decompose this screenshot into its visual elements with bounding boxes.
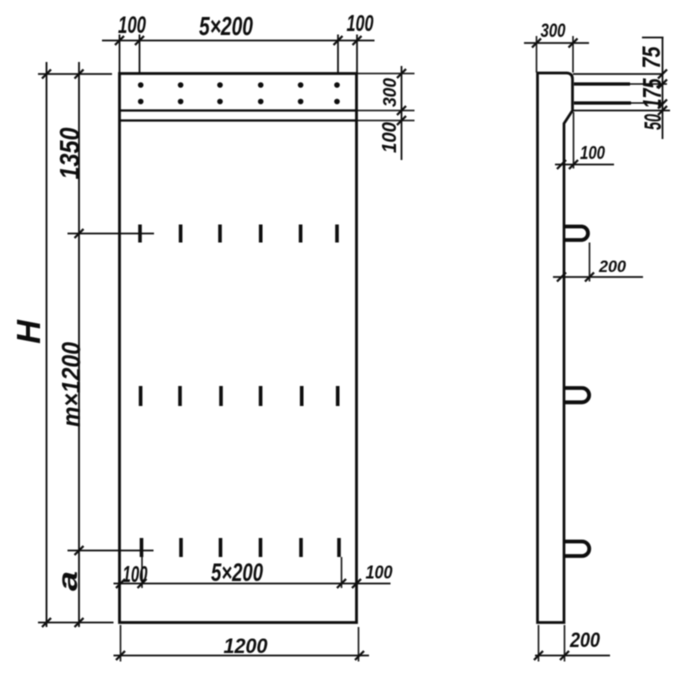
svg-text:100: 100: [347, 10, 374, 36]
svg-text:300: 300: [379, 77, 400, 107]
svg-text:200: 200: [569, 629, 600, 652]
svg-text:5×200: 5×200: [211, 559, 263, 587]
svg-text:H: H: [10, 319, 47, 344]
svg-text:5×200: 5×200: [199, 11, 253, 41]
svg-text:175: 175: [637, 78, 667, 108]
svg-text:100: 100: [366, 562, 394, 583]
svg-text:200: 200: [598, 257, 626, 276]
svg-text:100: 100: [123, 561, 148, 587]
svg-text:100: 100: [118, 12, 146, 39]
svg-text:300: 300: [541, 20, 566, 42]
svg-text:100: 100: [580, 143, 605, 163]
svg-text:a: a: [52, 571, 83, 591]
svg-text:1350: 1350: [54, 127, 85, 179]
svg-text:50: 50: [640, 114, 667, 130]
svg-text:1200: 1200: [224, 635, 268, 658]
svg-text:100: 100: [379, 122, 401, 153]
svg-text:75: 75: [638, 46, 666, 69]
svg-text:m×1200: m×1200: [56, 342, 86, 427]
